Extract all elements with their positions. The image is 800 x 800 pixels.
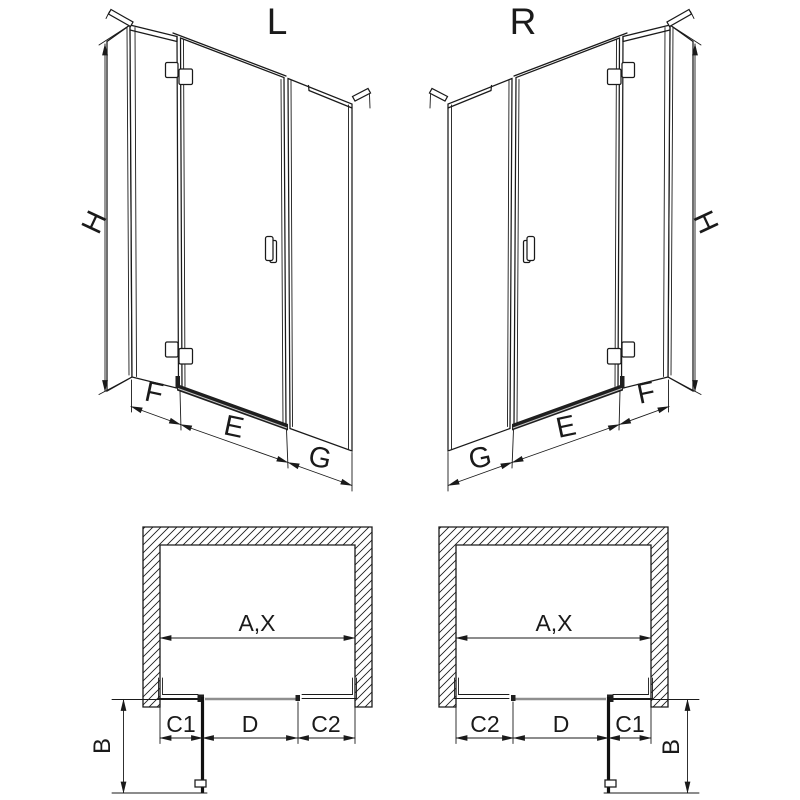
door-strike-block [296, 695, 301, 701]
shower-door-technical-drawing: L R H F E G H F E G A,X C1 D C2 B A,X C2… [0, 0, 800, 800]
label-b-right: B [658, 739, 685, 755]
label-c1-left: C1 [166, 711, 195, 737]
label-d-left: D [242, 711, 259, 737]
label-b-left: B [89, 738, 116, 754]
drawing-svg: L R H F E G H F E G A,X C1 D C2 B A,X C2… [0, 0, 800, 800]
wall-bracket-left [109, 10, 134, 27]
label-c1-right: C1 [615, 711, 644, 737]
label-c2-left: C2 [311, 711, 340, 737]
label-ax-right: A,X [535, 610, 572, 636]
fixed-panel-f [130, 25, 179, 389]
label-g-right: G [466, 440, 495, 476]
fixed-panel-g [288, 79, 352, 452]
door-handle-plan [195, 780, 206, 787]
wall-bracket-right [353, 89, 371, 102]
label-ax-left: A,X [238, 610, 275, 636]
label-g-left: G [306, 440, 335, 476]
door-panel [181, 38, 287, 427]
variant-title-left: L [267, 1, 288, 42]
label-d-right: D [553, 711, 570, 737]
fixed-glass-left [159, 678, 199, 699]
fixed-glass-right [302, 678, 357, 699]
door-handle [266, 237, 277, 263]
label-c2-right: C2 [470, 711, 499, 737]
variant-title-right: R [510, 1, 537, 42]
label-e-left: E [221, 410, 247, 445]
label-e-right: E [553, 410, 579, 445]
